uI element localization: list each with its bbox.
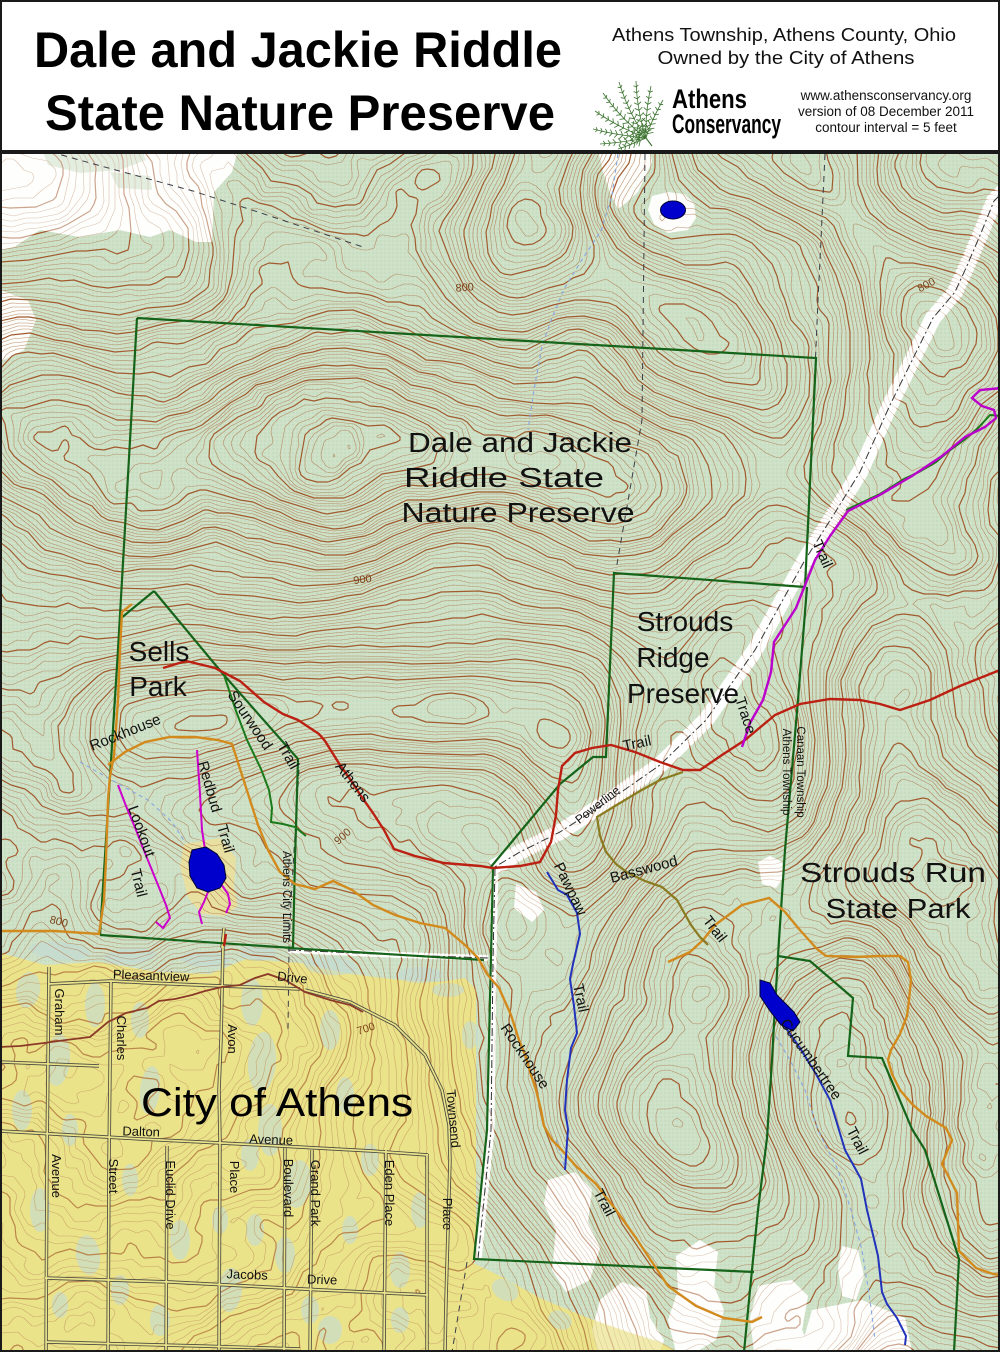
svg-text:Charles: Charles — [114, 1016, 129, 1061]
svg-text:Place: Place — [227, 1161, 242, 1194]
svg-text:Ridge: Ridge — [636, 642, 709, 673]
svg-text:Athens Township: Athens Township — [780, 729, 792, 816]
svg-text:version of 08 December 2011: version of 08 December 2011 — [798, 104, 974, 119]
svg-text:State Nature Preserve: State Nature Preserve — [45, 85, 555, 141]
svg-text:Athens City Limits: Athens City Limits — [280, 851, 292, 943]
svg-text:Owned by the City of Athens: Owned by the City of Athens — [658, 48, 915, 68]
svg-text:Sells: Sells — [129, 636, 190, 667]
svg-text:Euclid Drive: Euclid Drive — [163, 1160, 178, 1229]
svg-text:900: 900 — [353, 573, 373, 587]
svg-text:Boulevard: Boulevard — [281, 1159, 296, 1218]
svg-text:State Park: State Park — [826, 893, 972, 924]
svg-text:Pleasantview: Pleasantview — [113, 967, 191, 985]
svg-text:contour interval = 5 feet: contour interval = 5 feet — [815, 120, 957, 135]
svg-text:Dale and Jackie: Dale and Jackie — [408, 427, 632, 458]
svg-text:www.athensconservancy.org: www.athensconservancy.org — [800, 88, 972, 103]
svg-text:Dalton: Dalton — [122, 1123, 160, 1139]
svg-text:Park: Park — [129, 671, 188, 702]
svg-text:Drive: Drive — [277, 968, 309, 986]
svg-text:City of Athens: City of Athens — [141, 1081, 413, 1125]
svg-text:Grand Park: Grand Park — [308, 1160, 323, 1227]
svg-text:Preserve: Preserve — [627, 678, 739, 709]
svg-text:Jacobs: Jacobs — [226, 1266, 268, 1282]
svg-text:Riddle State: Riddle State — [404, 462, 604, 493]
svg-text:Dale and Jackie Riddle: Dale and Jackie Riddle — [34, 22, 562, 78]
svg-text:Street: Street — [106, 1159, 121, 1194]
svg-text:Nature Preserve: Nature Preserve — [402, 497, 635, 528]
svg-text:Eden Place: Eden Place — [382, 1160, 397, 1227]
svg-text:Strouds: Strouds — [637, 606, 734, 637]
svg-text:Conservancy: Conservancy — [672, 109, 781, 139]
svg-text:Avenue: Avenue — [249, 1131, 293, 1148]
svg-text:Graham: Graham — [52, 989, 67, 1036]
svg-text:Drive: Drive — [307, 1271, 338, 1287]
svg-text:Avon: Avon — [225, 1024, 240, 1053]
svg-text:Place: Place — [440, 1198, 455, 1231]
svg-text:Avenue: Avenue — [49, 1154, 64, 1198]
svg-text:Strouds Run: Strouds Run — [800, 857, 986, 888]
svg-text:Canaan Township: Canaan Township — [794, 726, 806, 817]
svg-text:Athens Township, Athens County: Athens Township, Athens County, Ohio — [612, 25, 956, 45]
svg-text:800: 800 — [455, 281, 474, 295]
